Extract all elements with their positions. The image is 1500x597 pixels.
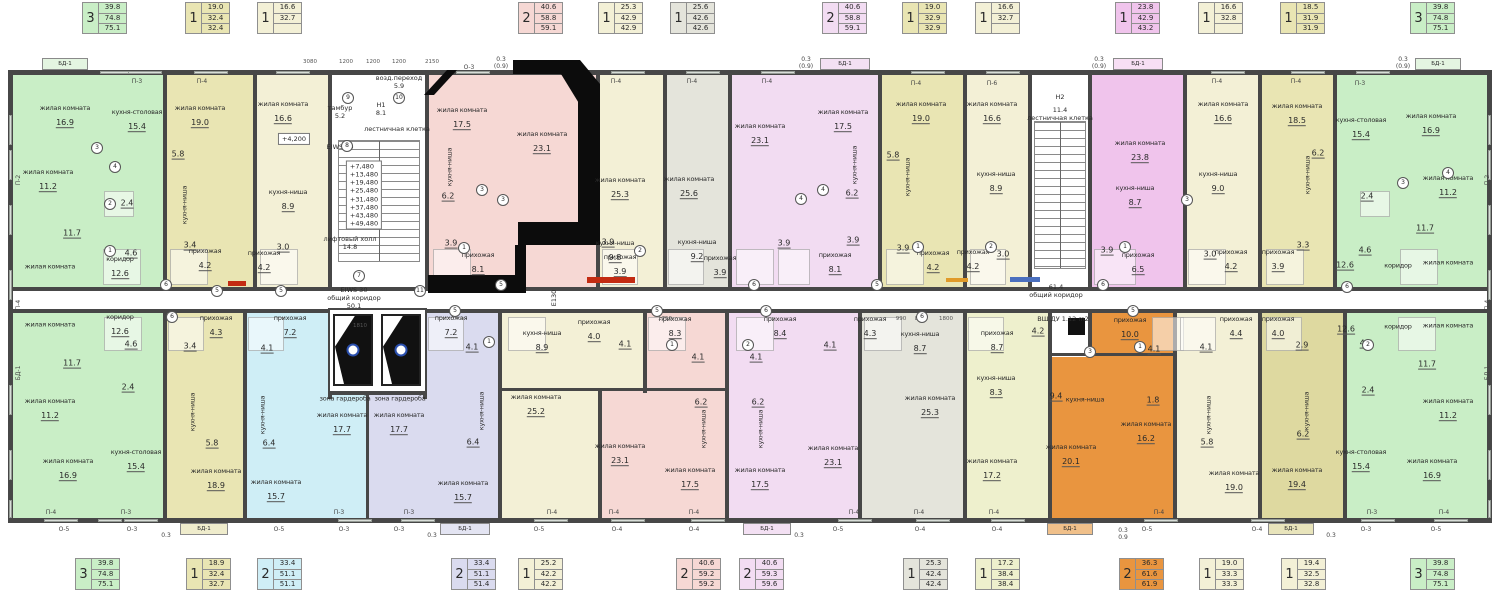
room-area: 16.9: [1422, 126, 1440, 136]
room-name: прихожая: [1215, 249, 1248, 256]
room-area: 12.6: [1336, 261, 1354, 271]
room-area: 17.5: [453, 120, 471, 130]
axis-marker: П-4: [547, 509, 558, 516]
room-area: 4.3: [864, 329, 877, 339]
unit-areas: 39.874.875.1: [98, 3, 126, 33]
room-area: 11.7: [63, 359, 81, 369]
room-name: прихожая: [1220, 316, 1253, 323]
unit-area-value: 38.4: [992, 570, 1019, 581]
room-area: 6.2: [752, 398, 765, 408]
room-area: 17.5: [751, 480, 769, 490]
room-name: кухня-столовая: [1336, 117, 1387, 124]
room-area: 4.1: [619, 340, 632, 350]
room-label: 6.2: [695, 392, 708, 409]
room-label: жилая комната15.7: [251, 479, 301, 503]
room-label: жилая комната16.6: [967, 101, 1017, 125]
door-number-badge: 5: [211, 285, 223, 297]
door-number-badge: 5: [275, 285, 287, 297]
room-area: 9.2: [691, 252, 704, 262]
room-name: жилая комната: [905, 395, 955, 402]
room-label: прихожая4.2: [248, 250, 281, 274]
room-name: прихожая: [189, 248, 222, 255]
balcony-tab: БД-1: [1415, 58, 1461, 70]
room-name: зона гардероба: [374, 396, 425, 403]
unit-summary-badge: 125.342.442.4: [903, 558, 948, 590]
room-area: 2.4: [1362, 386, 1375, 396]
room-area: 7.2: [445, 328, 458, 338]
room-area: 3.9: [847, 236, 860, 246]
door-number-badge: 1: [483, 336, 495, 348]
room-area: 25.6: [680, 189, 698, 199]
room-label: прихожая3.9: [704, 255, 737, 279]
room-area: 10.0: [1121, 330, 1139, 340]
room-label: кухня-ниша: [1305, 156, 1312, 195]
room-name: прихожая: [200, 315, 233, 322]
unit-rooms-count: 1: [903, 3, 918, 33]
legend-strip-bottom: 339.874.875.1118.932.432.7233.451.151.12…: [0, 558, 1500, 592]
room-label: прихожая8.1: [819, 252, 852, 276]
door-number-badge: 6: [166, 311, 178, 323]
room-area: 4.2: [199, 261, 212, 271]
room-area: 23.1: [611, 456, 629, 466]
axis-marker: 0.3: [496, 56, 506, 63]
room-name: жилая комната: [25, 322, 75, 329]
unit-areas: 19.032.932.9: [918, 3, 946, 33]
room-name: жилая комната: [258, 101, 308, 108]
door-number-badge: 4: [795, 193, 807, 205]
room-label: 2.9: [1296, 335, 1309, 352]
room-area: 4.2: [927, 263, 940, 273]
room-label: 4.1: [619, 334, 632, 351]
unit-summary-badge: 233.451.151.4: [451, 558, 496, 590]
balcony-tab: БД-1: [820, 58, 870, 70]
room-name: жилая комната: [1209, 470, 1259, 477]
door-number-badge: 3: [1084, 346, 1096, 358]
axis-marker: П-3: [121, 509, 132, 516]
room-name: жилая комната: [1272, 467, 1322, 474]
unit-area-value: 32.7: [203, 580, 230, 590]
dimension-text: 1200: [392, 59, 406, 65]
room-label: 3.0: [997, 244, 1010, 261]
room-area: 18.9: [207, 481, 225, 491]
unit-rooms-count: 3: [83, 3, 98, 33]
unit-rooms-count: 1: [1116, 3, 1131, 33]
room-area: 2.9: [1296, 341, 1309, 351]
room-area: 16.2: [1137, 434, 1155, 444]
room-name: жилая комната: [317, 412, 367, 419]
unit-summary-badge: 125.242.242.2: [518, 558, 563, 590]
door-number-badge: 3: [476, 184, 488, 196]
room-name: жилая комната: [374, 412, 424, 419]
unit-areas: 36.361.661.9: [1135, 559, 1163, 589]
plan-label-layer: жилая комната16.9кухня-столовая15.4жилая…: [8, 55, 1492, 542]
room-area: 9.0: [1212, 184, 1225, 194]
unit-area-value: 23.8: [1132, 3, 1159, 14]
room-label: жилая комната16.9: [1406, 113, 1456, 137]
room-name: коридор: [106, 256, 133, 263]
unit-summary-badge: 119.032.432.4: [185, 2, 230, 34]
axis-marker: О-4: [915, 526, 926, 533]
unit-area-value: 43.2: [1132, 24, 1159, 34]
room-area: 8.7: [1129, 198, 1142, 208]
room-area: 23.1: [751, 136, 769, 146]
room-area: 3.9: [614, 267, 627, 277]
room-area: 25.3: [611, 190, 629, 200]
door-number-badge: 6: [1097, 279, 1109, 291]
axis-marker: П-4: [762, 78, 773, 85]
room-label: прихожая4.2: [917, 250, 950, 274]
room-label: жилая комната19.0: [175, 105, 225, 129]
unit-rooms-count: 1: [1281, 3, 1296, 33]
room-label: жилая комната11.2: [23, 169, 73, 193]
door-number-badge: 9: [342, 92, 354, 104]
axis-marker: О-3: [1361, 526, 1372, 533]
room-label: кухня-ниша8.9: [523, 330, 562, 354]
unit-rooms-count: 1: [1282, 559, 1297, 589]
unit-area-value: [274, 24, 301, 33]
room-name: кухня-ниша: [1116, 185, 1155, 192]
room-label: 4.1: [692, 347, 705, 364]
unit-rooms-count: 1: [1200, 559, 1215, 589]
door-number-badge: 4: [1442, 167, 1454, 179]
axis-marker: О-5: [1142, 526, 1153, 533]
unit-rooms-count: 1: [599, 3, 614, 33]
room-label: жилая комната25.6: [664, 176, 714, 200]
unit-area-value: 51.1: [274, 580, 301, 590]
room-area: 6.2: [1312, 149, 1325, 159]
unit-area-value: 42.2: [535, 570, 562, 581]
room-area: 16.9: [1423, 471, 1441, 481]
unit-area-value: 42.9: [615, 24, 642, 34]
room-area: 11.2: [1439, 188, 1457, 198]
unit-area-value: 42.6: [687, 14, 714, 25]
room-name: жилая комната: [251, 479, 301, 486]
room-area: 4.1: [1148, 345, 1161, 355]
unit-area-value: 33.3: [1216, 580, 1243, 590]
core-text: EIWS 30 общий коридор 50.1: [327, 286, 380, 310]
room-label: коридор12.6: [106, 256, 133, 280]
room-label: кухня-столовая15.4: [112, 109, 163, 133]
unit-rooms-count: 2: [452, 559, 467, 589]
door-number-badge: 1: [1119, 241, 1131, 253]
axis-marker: П-4: [1484, 300, 1491, 311]
room-area: 8.9: [990, 184, 1003, 194]
room-area: 4.1: [1200, 343, 1213, 353]
axis-marker: 0.3: [1326, 532, 1336, 539]
door-number-badge: 6: [748, 279, 760, 291]
unit-area-value: 51.4: [468, 580, 495, 590]
room-label: зона гардероба: [374, 396, 425, 403]
room-name: жилая комната: [665, 467, 715, 474]
room-label: жилая комната16.9: [43, 458, 93, 482]
room-name: жилая комната: [595, 443, 645, 450]
room-name: прихожая: [1114, 317, 1147, 324]
room-label: кухня-ниша: [905, 158, 912, 197]
unit-rooms-count: 2: [823, 3, 838, 33]
unit-areas: 39.874.875.1: [1426, 559, 1454, 589]
unit-area-value: 40.6: [535, 3, 562, 14]
core-text: ВШ ДУ 1.12 m2: [1037, 315, 1089, 323]
room-label: 4.1: [824, 335, 837, 352]
room-area: 16.6: [274, 114, 292, 124]
axis-marker: П-4: [687, 78, 698, 85]
unit-rooms-count: 1: [258, 3, 273, 33]
room-area: 15.4: [1352, 130, 1370, 140]
room-label: прихожая4.2: [1215, 249, 1248, 273]
room-label: 4.6: [1359, 240, 1372, 257]
room-area: 8.7: [991, 343, 1004, 353]
room-area: 23.1: [824, 458, 842, 468]
room-name: жилая комната: [43, 458, 93, 465]
unit-area-value: 19.0: [919, 3, 946, 14]
room-name: прихожая: [764, 316, 797, 323]
axis-marker: (0.9): [1092, 63, 1106, 70]
unit-summary-badge: 116.632.8: [1198, 2, 1243, 34]
room-name: кухня-ниша: [1206, 396, 1213, 435]
unit-areas: 16.632.7: [991, 3, 1019, 33]
room-label: прихожая4.2: [957, 249, 990, 273]
axis-marker: 0.3: [1398, 56, 1408, 63]
room-label: жилая комната23.1: [808, 445, 858, 469]
room-name: кухня-ниша: [447, 148, 454, 187]
room-area: 8.1: [829, 265, 842, 275]
unit-area-value: 32.4: [202, 14, 229, 25]
room-label: 3.9: [897, 238, 910, 255]
balcony-tab: БД-1: [180, 523, 228, 535]
dimension-text: 1200: [339, 59, 353, 65]
core-text: лифтовый холл 14.8: [323, 235, 376, 251]
room-name: кухня-столовая: [111, 449, 162, 456]
room-name: прихожая: [1122, 252, 1155, 259]
room-name: прихожая: [704, 255, 737, 262]
axis-marker: П-3: [334, 509, 345, 516]
axis-marker: 0.3: [427, 532, 437, 539]
room-name: жилая комната: [818, 109, 868, 116]
axis-marker: О-5: [1431, 526, 1442, 533]
room-label: 5.8: [206, 433, 219, 450]
axis-marker: О-4: [612, 526, 623, 533]
unit-summary-badge: 117.238.438.4: [975, 558, 1020, 590]
unit-area-value: 42.6: [687, 24, 714, 34]
room-name: кухня-ниша: [901, 331, 940, 338]
unit-area-value: 74.8: [1427, 14, 1454, 25]
room-area: 17.5: [834, 122, 852, 132]
room-label: кухня-ниша: [260, 396, 267, 435]
room-area: 11.7: [1416, 224, 1434, 234]
door-number-badge: 2: [742, 339, 754, 351]
door-number-badge: 11: [414, 285, 426, 297]
unit-area-value: 59.3: [756, 570, 783, 581]
room-area: 15.7: [454, 493, 472, 503]
room-area: 5.8: [1201, 438, 1214, 448]
room-label: кухня-ниша8.7: [1116, 185, 1155, 209]
room-name: кухня-ниша: [260, 396, 267, 435]
unit-summary-badge: 233.451.151.1: [257, 558, 302, 590]
room-name: кухня-ниша: [479, 392, 486, 431]
room-label: прихожая4.0: [578, 319, 611, 343]
door-number-badge: 6: [160, 279, 172, 291]
room-name: жилая комната: [1407, 458, 1457, 465]
room-area: 12.6: [111, 269, 129, 279]
room-label: прихожая7.2: [274, 315, 307, 339]
room-area: 15.4: [128, 122, 146, 132]
room-area: 4.0: [1272, 329, 1285, 339]
room-label: 2.4: [122, 377, 135, 394]
room-area: 5.8: [172, 150, 185, 160]
unit-summary-badge: 240.659.259.2: [676, 558, 721, 590]
room-label: жилая комната23.8: [1115, 140, 1165, 164]
unit-rooms-count: 2: [519, 3, 534, 33]
room-area: 2.4: [1361, 192, 1374, 202]
door-number-badge: 2: [104, 198, 116, 210]
room-name: кухня-столовая: [1336, 449, 1387, 456]
axis-marker: П-4: [989, 509, 1000, 516]
dimension-text: 1810: [353, 323, 367, 329]
unit-area-value: 25.3: [615, 3, 642, 14]
room-label: кухня-ниша: [190, 393, 197, 432]
room-name: жилая комната: [664, 176, 714, 183]
room-area: 16.6: [1214, 114, 1232, 124]
room-label: 3.9: [1101, 240, 1114, 257]
room-label: 6.2: [1312, 143, 1325, 160]
axis-marker: О-4: [689, 526, 700, 533]
room-area: 19.0: [191, 118, 209, 128]
room-label: 1.8: [1147, 390, 1160, 407]
room-label: кухня-ниша: [479, 392, 486, 431]
core-text: 11.4 лестничная клетка: [1027, 106, 1093, 122]
room-name: жилая комната: [1046, 444, 1096, 451]
room-label: жилая комната: [1423, 323, 1473, 330]
axis-marker: О-4: [992, 526, 1003, 533]
room-label: прихожая3.9: [1262, 249, 1295, 273]
unit-area-value: 32.4: [203, 570, 230, 581]
axis-marker: П-4: [15, 300, 22, 311]
unit-areas: 40.658.859.1: [534, 3, 562, 33]
unit-summary-badge: 119.033.333.3: [1199, 558, 1244, 590]
unit-summary-badge: 125.642.642.6: [670, 2, 715, 34]
room-area: 3.9: [445, 239, 458, 249]
floor-plan-screen: 339.874.875.1119.032.432.4116.632.7240.6…: [0, 0, 1500, 597]
room-area: 16.9: [56, 118, 74, 128]
room-area: 19.4: [1288, 480, 1306, 490]
unit-areas: 33.451.151.4: [467, 559, 495, 589]
core-text: возд.переход 5.9: [376, 74, 423, 90]
unit-areas: 25.642.642.6: [686, 3, 714, 33]
unit-area-value: 42.2: [535, 580, 562, 590]
room-area: 8.3: [990, 388, 1003, 398]
unit-areas: 39.874.875.1: [1426, 3, 1454, 33]
room-name: жилая комната: [517, 131, 567, 138]
room-name: жилая комната: [40, 105, 90, 112]
unit-area-value: 25.3: [920, 559, 947, 570]
door-number-badge: 10: [393, 92, 405, 104]
room-label: кухня-ниша: [701, 410, 708, 449]
room-area: 3.9: [1272, 262, 1285, 272]
door-number-badge: 1: [1134, 341, 1146, 353]
unit-area-value: 33.4: [468, 559, 495, 570]
unit-summary-badge: 240.658.859.1: [518, 2, 563, 34]
room-area: 3.9: [714, 268, 727, 278]
unit-areas: 19.033.333.3: [1215, 559, 1243, 589]
unit-area-value: 40.6: [839, 3, 866, 14]
room-name: жилая комната: [23, 169, 73, 176]
door-number-badge: 6: [916, 311, 928, 323]
room-name: жилая комната: [1115, 140, 1165, 147]
room-area: 23.8: [1131, 153, 1149, 163]
unit-area-value: 32.9: [919, 24, 946, 34]
unit-area-value: 32.7: [274, 14, 301, 25]
room-label: 3.9: [847, 230, 860, 247]
room-label: 11.7: [63, 353, 81, 370]
room-area: 11.2: [39, 182, 57, 192]
room-area: 15.7: [267, 492, 285, 502]
unit-area-value: 32.8: [1215, 14, 1242, 25]
room-name: кухня-ниша: [190, 393, 197, 432]
core-text: +7,480 +13,480 +19,480 +25,480 +31,480 +…: [346, 161, 382, 230]
room-area: 4.2: [1032, 327, 1045, 337]
room-label: жилая комната16.9: [1407, 458, 1457, 482]
room-name: кухня-ниша: [1199, 171, 1238, 178]
unit-areas: 25.342.442.4: [919, 559, 947, 589]
room-label: 5.8: [172, 144, 185, 161]
unit-area-value: 33.4: [274, 559, 301, 570]
unit-area-value: 42.4: [920, 580, 947, 590]
core-text: Е130: [550, 290, 558, 307]
room-area: 17.7: [333, 425, 351, 435]
room-label: 5.8: [887, 145, 900, 162]
axis-marker: 0.9: [1118, 534, 1128, 541]
unit-area-value: 18.9: [203, 559, 230, 570]
plan-canvas: жилая комната16.9кухня-столовая15.4жилая…: [8, 55, 1492, 542]
utility-mark: [946, 278, 968, 282]
room-label: 6.2: [1297, 424, 1310, 441]
unit-summary-badge: 119.032.932.9: [902, 2, 947, 34]
unit-rooms-count: 3: [1411, 3, 1426, 33]
room-label: кухня-ниша9.0: [1199, 171, 1238, 195]
room-area: 4.6: [125, 340, 138, 350]
unit-area-value: 17.2: [992, 559, 1019, 570]
unit-area-value: 19.0: [202, 3, 229, 14]
room-label: жилая комната18.5: [1272, 103, 1322, 127]
room-label: жилая комната18.9: [191, 468, 241, 492]
axis-marker: П-2: [1484, 175, 1491, 186]
room-label: жилая комната16.2: [1121, 421, 1171, 445]
room-area: 11.2: [41, 411, 59, 421]
unit-area-value: 40.6: [756, 559, 783, 570]
core-text: 61.4 общий коридор: [1029, 283, 1082, 299]
unit-area-value: 33.3: [1216, 570, 1243, 581]
unit-area-value: 32.7: [992, 14, 1019, 25]
room-label: 3.9: [778, 233, 791, 250]
unit-area-value: 51.1: [274, 570, 301, 581]
room-label: жилая комната19.0: [896, 101, 946, 125]
unit-summary-badge: 118.531.931.9: [1280, 2, 1325, 34]
room-label: жилая комната11.2: [25, 398, 75, 422]
room-area: 16.9: [59, 471, 77, 481]
unit-areas: 25.342.942.9: [614, 3, 642, 33]
unit-area-value: 39.8: [92, 559, 119, 570]
room-name: жилая комната: [1198, 101, 1248, 108]
room-label: кухня-ниша8.9: [269, 189, 308, 213]
legend-strip-top: 339.874.875.1119.032.432.4116.632.7240.6…: [0, 2, 1500, 36]
room-label: прихожая6.5: [1122, 252, 1155, 276]
axis-marker: П-4: [197, 78, 208, 85]
room-label: кухня-столовая15.4: [1336, 117, 1387, 141]
room-name: прихожая: [981, 330, 1014, 337]
room-label: прихожая4.3: [200, 315, 233, 339]
balcony-tab: БД-1: [1268, 523, 1314, 535]
room-label: 11.7: [1418, 354, 1436, 371]
